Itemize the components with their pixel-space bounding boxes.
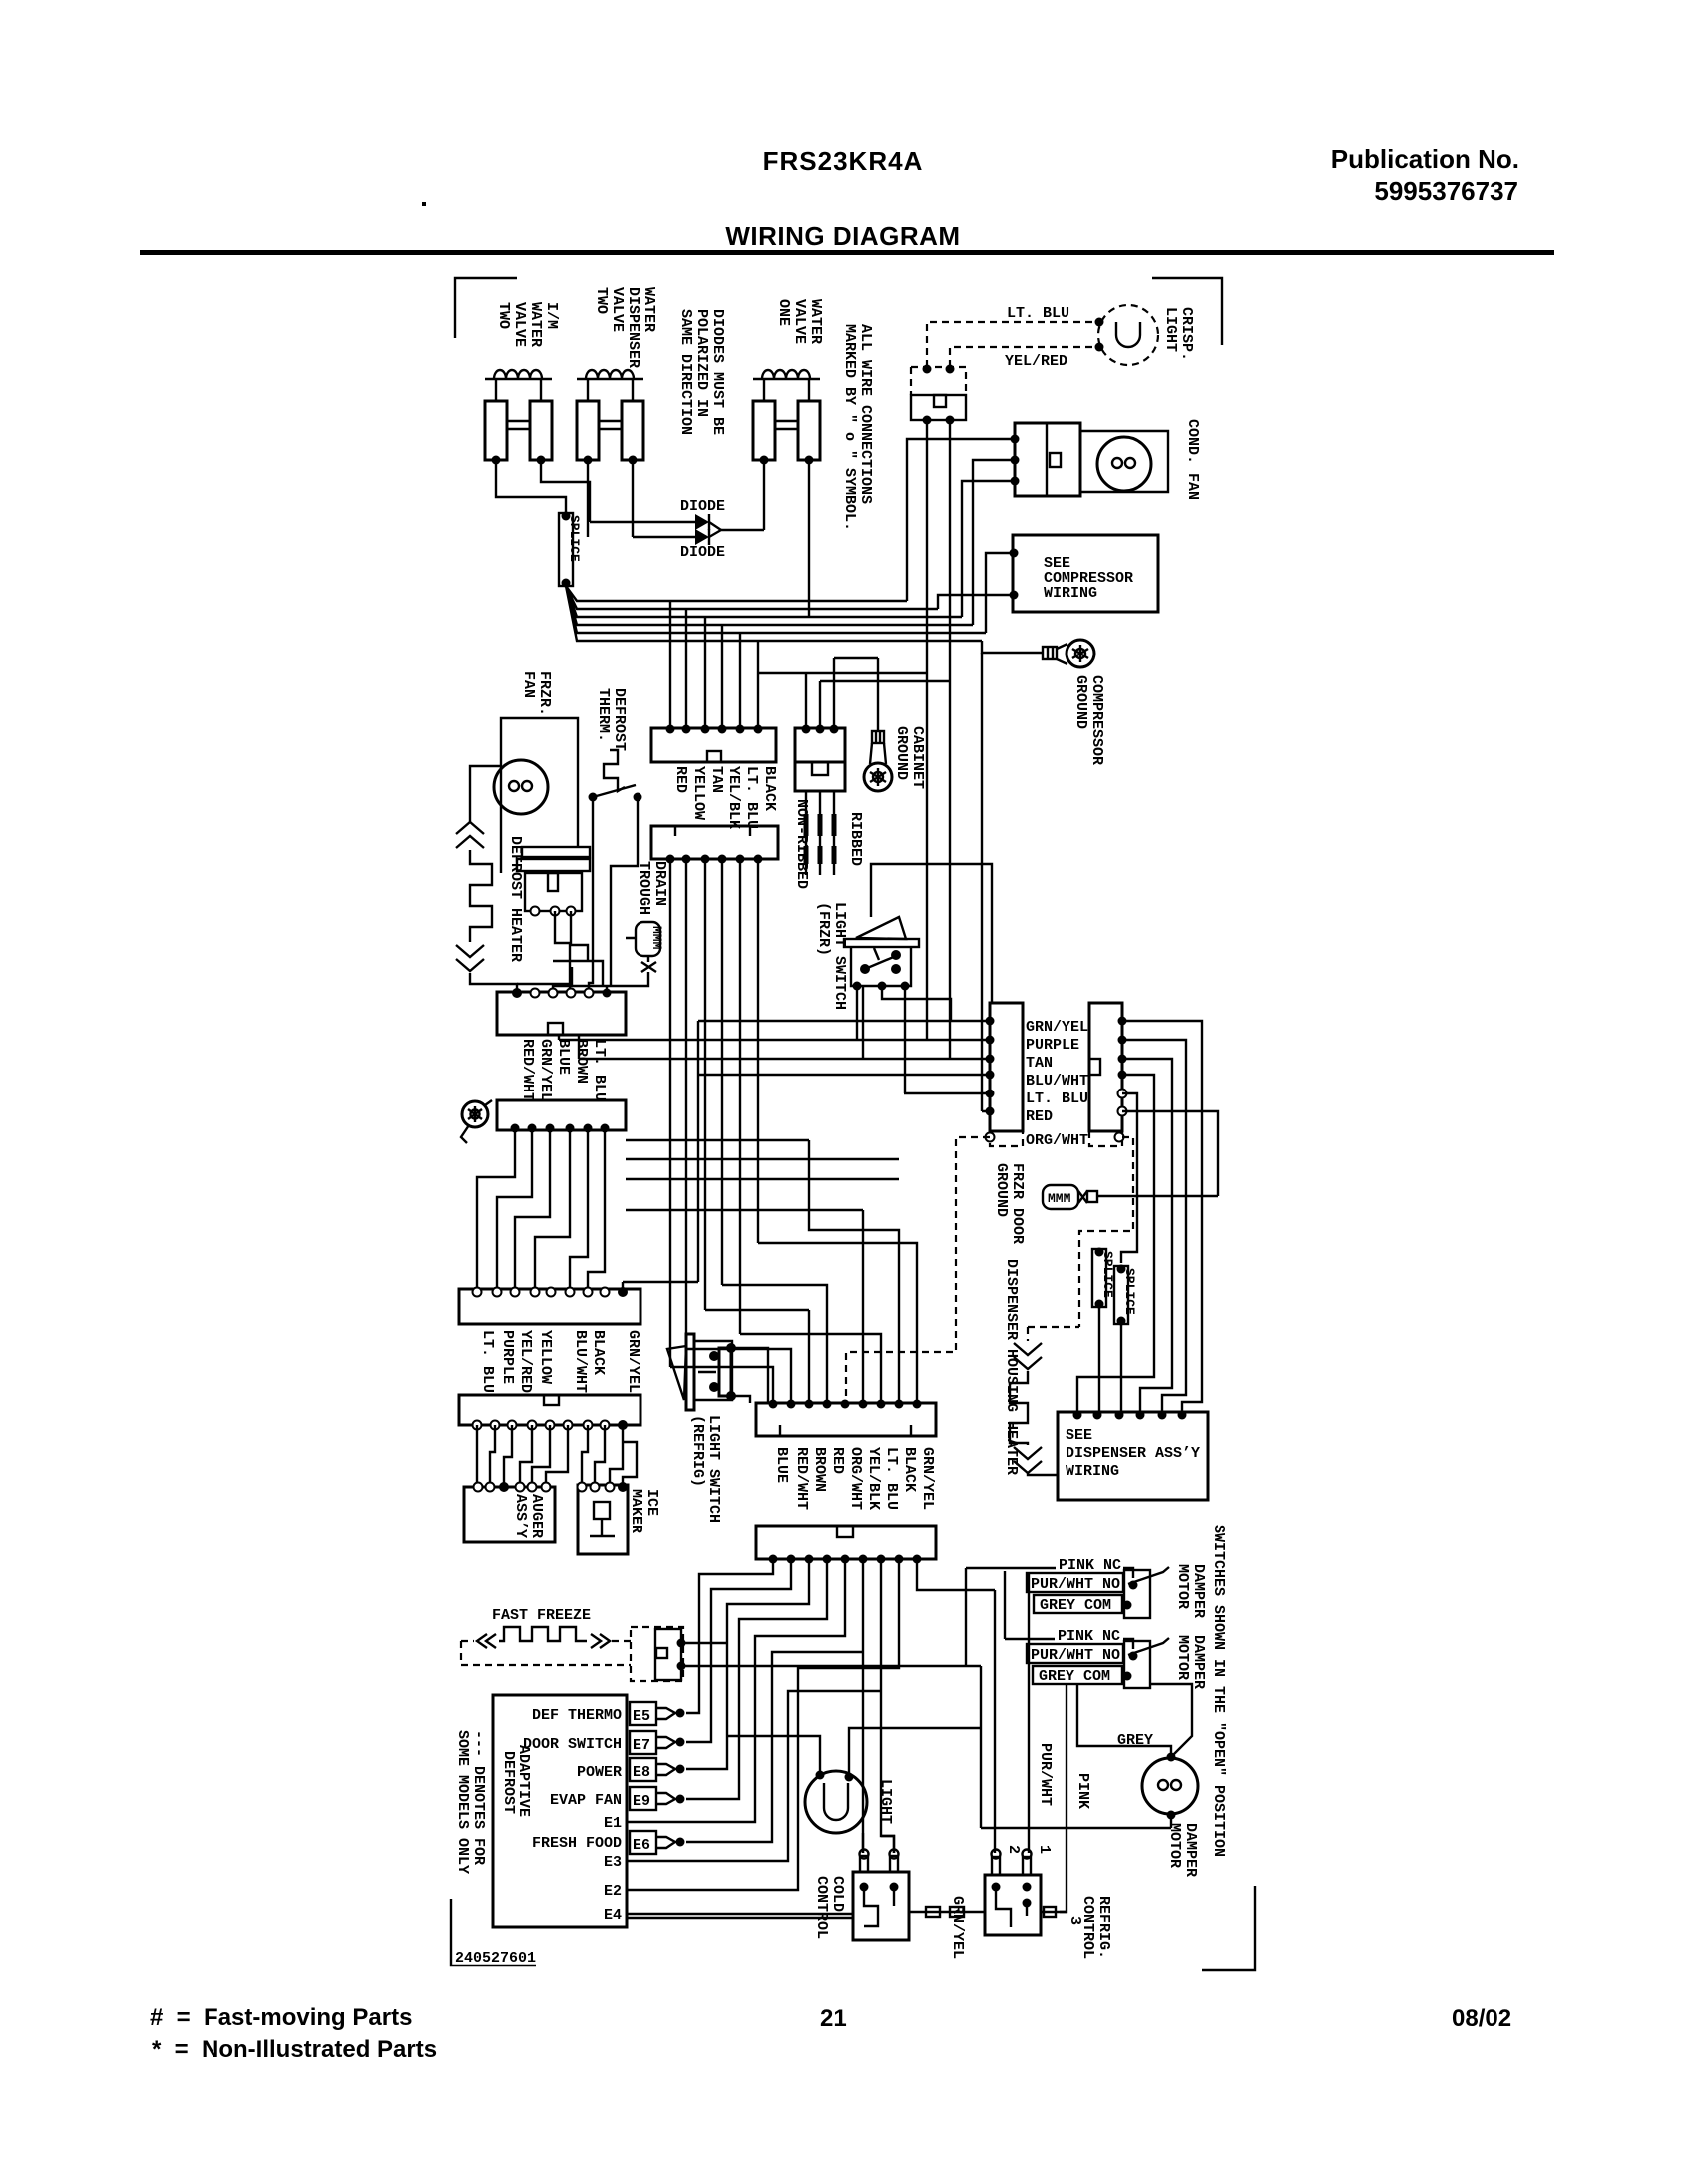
- svg-text:240527601: 240527601: [455, 1950, 536, 1966]
- svg-text:BLACK: BLACK: [590, 1330, 607, 1375]
- svg-text:POWER: POWER: [577, 1764, 622, 1781]
- svg-text:ALL WIRE CONNECTIONSMARKED BY: ALL WIRE CONNECTIONSMARKED BY " o " SYMB…: [841, 324, 874, 531]
- svg-text:PURPLE: PURPLE: [499, 1330, 516, 1384]
- svg-text:DEFROST HEATER: DEFROST HEATER: [507, 836, 524, 962]
- svg-text:DIODES MUST BEPOLARIZED INSAME: DIODES MUST BEPOLARIZED INSAME DIRECTION: [677, 309, 726, 435]
- svg-text:YEL/BLK: YEL/BLK: [865, 1447, 882, 1510]
- svg-text:RED/WHT: RED/WHT: [519, 1039, 536, 1101]
- svg-text:DIODE: DIODE: [680, 544, 725, 561]
- svg-text:DISPENSER ASS’Y: DISPENSER ASS’Y: [1066, 1445, 1200, 1462]
- svg-text:TAN: TAN: [1026, 1055, 1053, 1072]
- svg-text:BLUE: BLUE: [555, 1039, 572, 1075]
- svg-text:PINK: PINK: [1074, 1773, 1091, 1809]
- svg-text:GRN/YEL: GRN/YEL: [537, 1039, 554, 1101]
- svg-text:FRS23KR4A: FRS23KR4A: [763, 146, 924, 176]
- svg-text:LT. BLU: LT. BLU: [1007, 305, 1069, 322]
- svg-text:21: 21: [820, 2005, 847, 2032]
- svg-text:COND. FAN: COND. FAN: [1184, 419, 1201, 500]
- svg-text:ORG/WHT: ORG/WHT: [847, 1447, 864, 1510]
- svg-text:SPLICE: SPLICE: [1100, 1251, 1115, 1298]
- svg-text:BLU/WHT: BLU/WHT: [1026, 1073, 1088, 1090]
- svg-text:MMM: MMM: [1048, 1191, 1071, 1206]
- svg-text:08/02: 08/02: [1452, 2005, 1511, 2032]
- svg-text:BLACK: BLACK: [901, 1447, 918, 1492]
- svg-text:SPLICE: SPLICE: [567, 515, 582, 562]
- svg-text:LT. BLU: LT. BLU: [743, 766, 760, 829]
- svg-text:LT. BLU: LT. BLU: [883, 1447, 900, 1510]
- svg-text:SPLICE: SPLICE: [1122, 1268, 1137, 1315]
- svg-text:LT. BLU: LT. BLU: [1026, 1091, 1088, 1107]
- svg-text:YELLOW: YELLOW: [537, 1330, 554, 1384]
- svg-text:2: 2: [1005, 1845, 1022, 1854]
- svg-text:BROWN: BROWN: [573, 1039, 590, 1084]
- svg-text:WIRING DIAGRAM: WIRING DIAGRAM: [725, 221, 960, 251]
- svg-text:PUR/WHT NO: PUR/WHT NO: [1031, 1647, 1120, 1664]
- svg-text:BLACK: BLACK: [761, 766, 778, 811]
- svg-text:YELLOW: YELLOW: [690, 766, 707, 820]
- svg-text:PINK NC: PINK NC: [1059, 1557, 1121, 1574]
- svg-text:REFRIG.CONTROL: REFRIG.CONTROL: [1079, 1896, 1112, 1959]
- svg-text:GRN/YEL: GRN/YEL: [1026, 1019, 1088, 1036]
- svg-text:GRN/YEL: GRN/YEL: [949, 1896, 966, 1959]
- svg-text:LIGHT: LIGHT: [877, 1779, 894, 1824]
- svg-text:GREY COM: GREY COM: [1039, 1668, 1110, 1685]
- svg-text:* = Non-Illustrated Parts: * = Non-Illustrated Parts: [152, 2036, 437, 2063]
- svg-text:E1: E1: [604, 1815, 622, 1832]
- svg-text:EVAP FAN: EVAP FAN: [550, 1792, 622, 1809]
- svg-text:E9: E9: [633, 1793, 650, 1810]
- svg-text:PURPLE: PURPLE: [1026, 1037, 1079, 1054]
- svg-text:E6: E6: [633, 1837, 650, 1854]
- svg-text:MMM: MMM: [649, 926, 664, 950]
- svg-text:SEE: SEE: [1066, 1427, 1092, 1444]
- svg-text:DEF THERMO: DEF THERMO: [532, 1707, 622, 1724]
- svg-text:1: 1: [1036, 1845, 1053, 1854]
- svg-text:WIRING: WIRING: [1066, 1463, 1119, 1480]
- svg-text:E4: E4: [604, 1907, 622, 1924]
- svg-text:GREY: GREY: [1117, 1732, 1153, 1749]
- svg-text:YEL/RED: YEL/RED: [1005, 353, 1067, 370]
- svg-text:GREY COM: GREY COM: [1040, 1597, 1111, 1614]
- svg-text:SWITCHES SHOWN IN THE "OPEN" P: SWITCHES SHOWN IN THE "OPEN" POSITION: [1210, 1525, 1227, 1857]
- svg-text:PUR/WHT NO: PUR/WHT NO: [1031, 1576, 1120, 1593]
- svg-text:GRN/YEL: GRN/YEL: [919, 1447, 936, 1510]
- svg-text:DIODE: DIODE: [680, 498, 725, 515]
- svg-text:RIBBED: RIBBED: [847, 812, 864, 866]
- svg-text:BLU/WHT: BLU/WHT: [572, 1330, 589, 1393]
- svg-text:ORG/WHT: ORG/WHT: [1026, 1132, 1088, 1149]
- svg-text:DEFROSTTHERM.: DEFROSTTHERM.: [595, 688, 628, 751]
- svg-text:YEL/BLK: YEL/BLK: [725, 766, 742, 829]
- svg-text:NON-RIBBED: NON-RIBBED: [793, 799, 810, 889]
- svg-text:RED: RED: [829, 1447, 846, 1474]
- svg-text:RED/WHT: RED/WHT: [793, 1447, 810, 1510]
- svg-text:5995376737: 5995376737: [1374, 176, 1518, 206]
- svg-text:PUR/WHT: PUR/WHT: [1037, 1743, 1054, 1806]
- svg-text:BLUE: BLUE: [773, 1447, 790, 1483]
- svg-text:PINK NC: PINK NC: [1058, 1628, 1120, 1645]
- svg-text:Publication No.: Publication No.: [1331, 144, 1519, 174]
- svg-text:LT. BLU: LT. BLU: [479, 1330, 496, 1393]
- svg-text:# = Fast-moving Parts: # = Fast-moving Parts: [150, 2004, 412, 2031]
- svg-text:E7: E7: [633, 1737, 650, 1754]
- svg-text:BROWN: BROWN: [811, 1447, 828, 1492]
- svg-text:FRESH FOOD: FRESH FOOD: [532, 1835, 622, 1852]
- svg-text:DEFROST: DEFROST: [500, 1751, 517, 1814]
- svg-text:RED: RED: [672, 766, 689, 793]
- svg-text:DOOR SWITCH: DOOR SWITCH: [523, 1736, 622, 1753]
- svg-text:E5: E5: [633, 1708, 650, 1725]
- svg-text:LT. BLU: LT. BLU: [591, 1039, 608, 1101]
- svg-text:AUGERASS’Y: AUGERASS’Y: [512, 1494, 545, 1538]
- svg-text:FAST FREEZE: FAST FREEZE: [492, 1607, 591, 1624]
- svg-text:E2: E2: [604, 1883, 622, 1900]
- svg-text:CABINETGROUND: CABINETGROUND: [893, 726, 926, 789]
- svg-text:TAN: TAN: [708, 766, 725, 793]
- svg-text:RED: RED: [1026, 1108, 1053, 1125]
- svg-text:--- DENOTES FORSOME MODELS ONL: --- DENOTES FORSOME MODELS ONLY: [454, 1730, 487, 1874]
- svg-text:E3: E3: [604, 1854, 622, 1871]
- svg-text:WIRING: WIRING: [1044, 585, 1097, 602]
- svg-text:GRN/YEL: GRN/YEL: [625, 1330, 641, 1393]
- svg-text:E8: E8: [633, 1764, 650, 1781]
- svg-text:YEL/RED: YEL/RED: [517, 1330, 534, 1393]
